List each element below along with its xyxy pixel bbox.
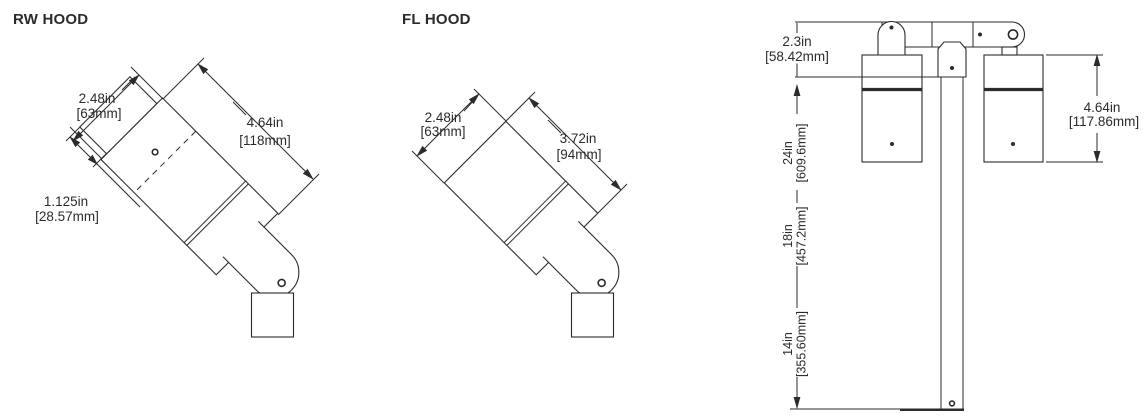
mount-height-24-in: 24in [781, 141, 795, 165]
fl-hood-title: FL HOOD [402, 11, 471, 28]
mount-height-14-in: 14in [781, 332, 795, 356]
fl-hood-body [444, 121, 643, 320]
mount-height-option-24: 24in [609.6mm] [781, 123, 809, 182]
rw-width-label-in: 2.48in [79, 91, 116, 106]
mount-height-18-mm: [457.2mm] [795, 206, 809, 265]
pole [941, 77, 963, 409]
pole-mount-view: 2.3in [58.42mm] 4.64in [117.86mm] 24in [… [765, 22, 1139, 410]
rw-stem [252, 293, 294, 337]
ground-line [790, 409, 964, 410]
right-fixture-head [984, 55, 1043, 162]
mount-height-dimension-chain: 24in [609.6mm] 18in [457.2mm] 14in [355.… [781, 85, 809, 408]
rw-hood-title: RW HOOD [13, 11, 88, 28]
mount-height-option-18: 18in [457.2mm] [781, 206, 809, 265]
technical-drawing-svg: RW HOOD 2.48in [63mm] [0, 0, 1148, 417]
right-head-mount-tab [1002, 47, 1017, 55]
mount-height-option-14: 14in [355.60mm] [781, 311, 809, 377]
rw-hood-view: RW HOOD 2.48in [63mm] [13, 11, 323, 337]
mount-height-14-mm: [355.60mm] [795, 311, 809, 377]
fl-length-label-in: 3.72in [560, 131, 597, 146]
fl-hood-view: FL HOOD 2.48in [63mm] 3.72in [94mm] [402, 11, 643, 337]
fl-length-label-mm: [94mm] [556, 147, 601, 162]
rw-cap-label-in: 1.125in [44, 194, 88, 209]
arm-height-label-mm: [58.42mm] [765, 49, 829, 64]
pole-screw [950, 401, 955, 406]
rw-cap-label-mm: [28.57mm] [35, 209, 99, 224]
fixture-height-dimension: 4.64in [117.86mm] [1046, 55, 1139, 162]
pole-top-hub [938, 42, 966, 77]
fl-width-label-mm: [63mm] [420, 124, 465, 139]
mount-height-24-mm: [609.6mm] [795, 123, 809, 182]
arm-height-label-in: 2.3in [782, 34, 811, 49]
mount-height-18-in: 18in [781, 224, 795, 248]
fl-stem [572, 293, 614, 337]
left-fixture-head [862, 55, 922, 162]
arm-swivel-ring [1008, 30, 1017, 39]
rw-length-label-in: 4.64in [247, 115, 284, 130]
fixture-height-label-mm: [117.86mm] [1069, 114, 1139, 129]
fl-width-label-in: 2.48in [425, 110, 462, 125]
rw-width-label-mm: [63mm] [76, 106, 121, 121]
spec-sheet-drawing: RW HOOD 2.48in [63mm] [0, 0, 1148, 417]
fixture-height-label-in: 4.64in [1084, 100, 1121, 115]
rw-length-label-mm: [118mm] [239, 133, 291, 148]
